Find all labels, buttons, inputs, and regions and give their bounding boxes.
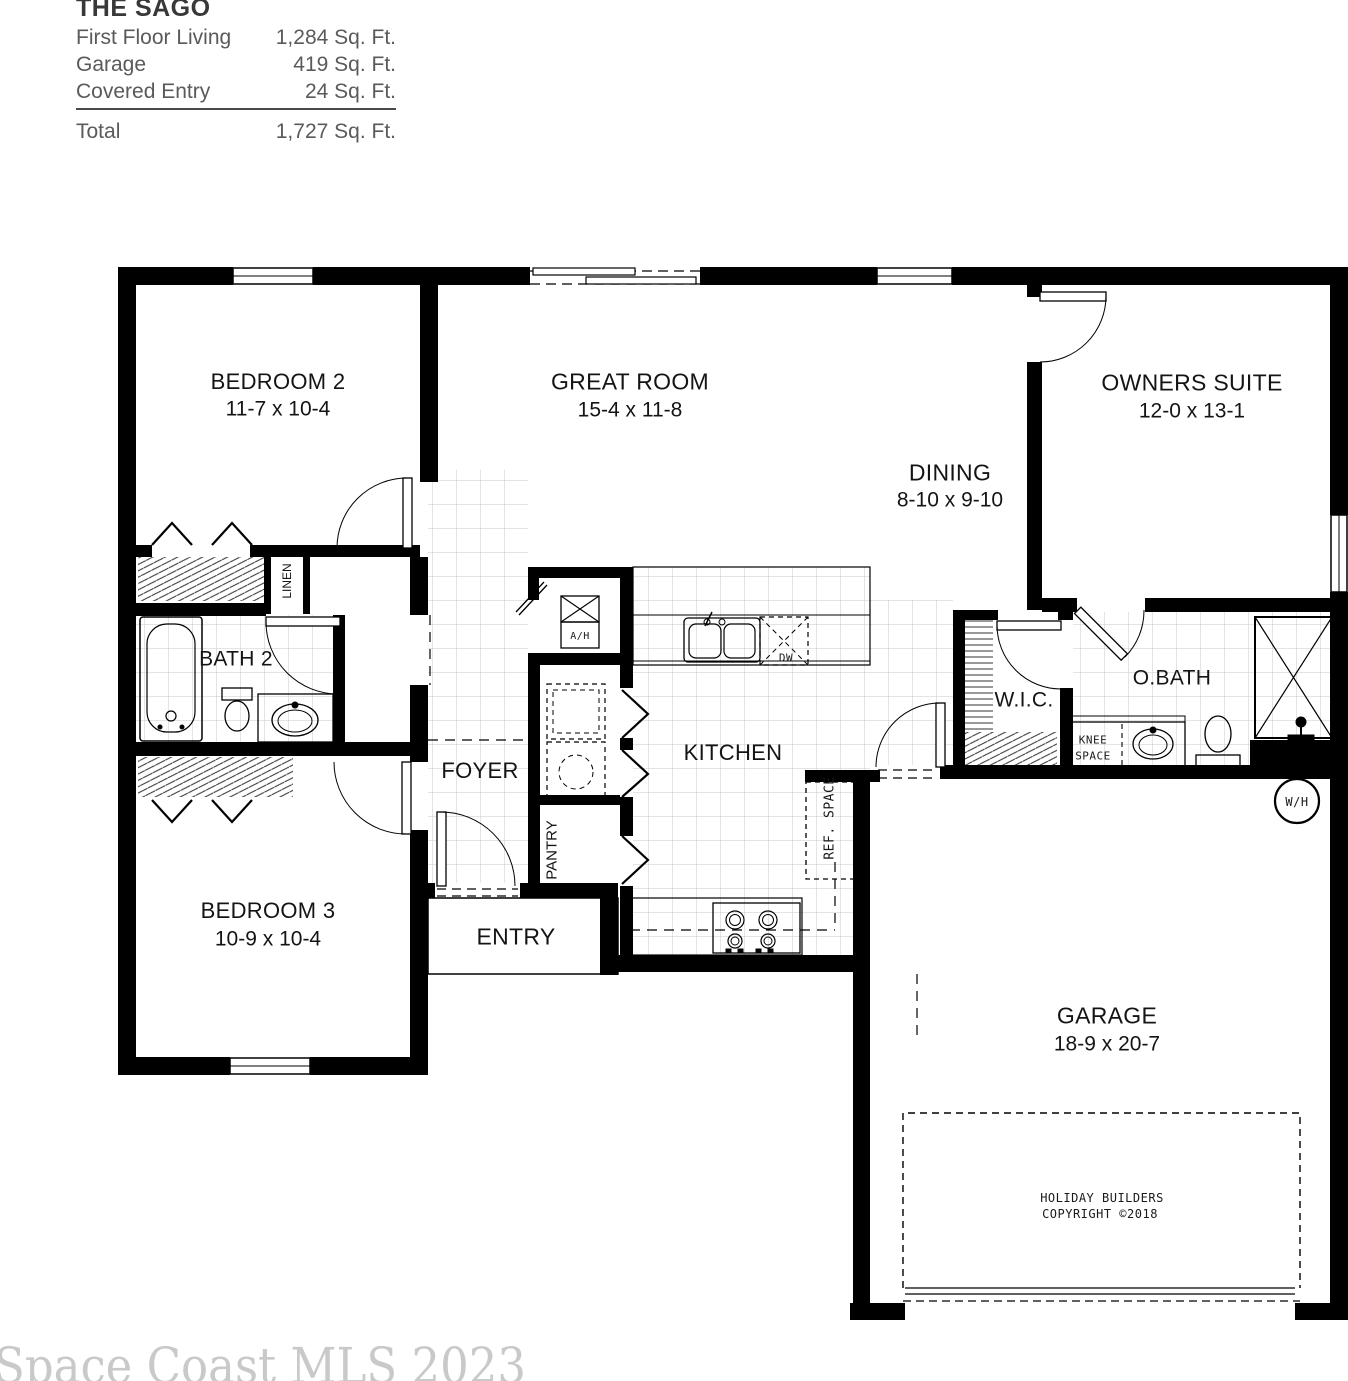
garage-dims: 18-9 x 20-7 bbox=[1054, 1034, 1160, 1055]
kitchen-label: KITCHEN bbox=[684, 742, 783, 764]
bath2-label: BATH 2 bbox=[199, 649, 273, 670]
foyer-label: FOYER bbox=[441, 760, 518, 782]
dining-dims: 8-10 x 9-10 bbox=[897, 490, 1003, 511]
knee-space-label-line1: KNEE bbox=[1079, 735, 1108, 746]
bedroom3-door bbox=[334, 762, 411, 834]
bedroom2-window bbox=[233, 268, 313, 284]
owners-suite-label: OWNERS SUITE bbox=[1101, 372, 1282, 395]
great-room-window bbox=[877, 268, 952, 284]
garage-label: GARAGE bbox=[1057, 1005, 1157, 1028]
owners-suite-dims: 12-0 x 13-1 bbox=[1139, 401, 1245, 422]
owners-suite-window bbox=[1331, 515, 1347, 592]
mls-watermark: Space Coast MLS 2023 bbox=[0, 1337, 526, 1381]
bedroom2-label: BEDROOM 2 bbox=[211, 371, 346, 393]
air-handler-label: A/H bbox=[570, 632, 590, 642]
ref-space-label: REF. SPACE bbox=[824, 776, 837, 859]
bedroom3-dims: 10-9 x 10-4 bbox=[215, 929, 321, 950]
bedroom3-window bbox=[230, 1058, 310, 1074]
builder-copyright-line1: HOLIDAY BUILDERS bbox=[1040, 1192, 1164, 1204]
floor-plan-drawing bbox=[0, 0, 1348, 1381]
builder-copyright-line2: COPYRIGHT ©2018 bbox=[1042, 1208, 1158, 1220]
pantry-label: PANTRY bbox=[545, 820, 560, 879]
great-room-dims: 15-4 x 11-8 bbox=[578, 400, 683, 421]
bedroom2-dims: 11-7 x 10-4 bbox=[226, 399, 331, 420]
wic-label: W.I.C. bbox=[995, 690, 1054, 711]
dining-label: DINING bbox=[909, 462, 991, 485]
floor-plan-page: THE SAGO First Floor Living 1,284 Sq. Ft… bbox=[0, 0, 1348, 1381]
bedroom3-label: BEDROOM 3 bbox=[201, 900, 336, 922]
obath-label: O.BATH bbox=[1133, 668, 1211, 689]
entry-label: ENTRY bbox=[476, 926, 555, 949]
dishwasher-label: DW bbox=[779, 653, 793, 664]
washer-dryer bbox=[547, 684, 605, 798]
water-heater-label: W/H bbox=[1285, 796, 1308, 808]
sliding-door bbox=[530, 268, 700, 284]
bedroom2-door bbox=[337, 478, 412, 548]
owners-suite-door bbox=[1040, 292, 1106, 362]
great-room-label: GREAT ROOM bbox=[551, 371, 709, 394]
knee-space-label-line2: SPACE bbox=[1075, 751, 1111, 762]
linen-label: LINEN bbox=[281, 563, 293, 598]
wic-door bbox=[997, 621, 1061, 689]
